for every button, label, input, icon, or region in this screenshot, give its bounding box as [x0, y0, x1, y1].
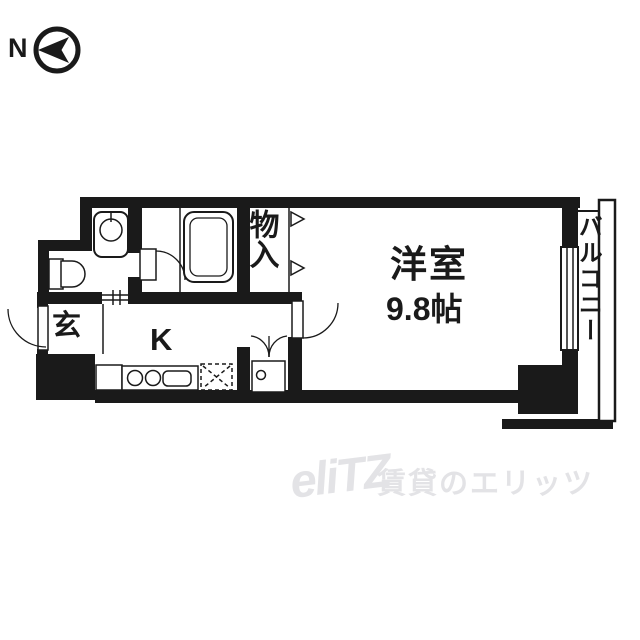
- bathtub-inner: [190, 218, 227, 276]
- label-closet: 物入: [245, 209, 277, 293]
- floorplan-drawing: [0, 0, 640, 640]
- label-balcony: バルコニー: [575, 214, 600, 399]
- compass-north-icon: [36, 29, 78, 71]
- label-western-room: 洋室: [390, 246, 468, 285]
- bathroom-door: [140, 249, 185, 280]
- bathroom: [180, 208, 233, 292]
- entrance-door: [8, 306, 48, 350]
- wall-bath-left-upper: [128, 197, 142, 253]
- floorplan-canvas: N 玄 K 物入 洋室 9.8帖 バルコニー eliTZ 賃貸のエリッツ: [0, 0, 640, 640]
- washbasin: [94, 212, 128, 257]
- bifold-door: [251, 336, 287, 357]
- washing-machine-pan: [252, 361, 285, 392]
- label-kitchen: K: [150, 324, 172, 357]
- pillar-bottom-right: [518, 365, 578, 414]
- wall-mid-right: [142, 292, 302, 304]
- wall-alcove-left: [237, 347, 250, 393]
- western-room-door: [292, 301, 338, 338]
- wall-bottom: [95, 390, 520, 403]
- label-room-size: 9.8帖: [386, 293, 463, 327]
- label-genkan: 玄: [52, 311, 81, 341]
- wall-top: [80, 197, 580, 208]
- watermark-brand-text: 賃貸のエリッツ: [377, 460, 594, 502]
- counter-end-box: [96, 365, 122, 390]
- wall-kitchen-room-lower: [288, 337, 302, 393]
- toilet: [49, 259, 85, 289]
- washing-machine-space: [201, 364, 232, 390]
- balcony-railing: [599, 200, 615, 421]
- wall-genkan-bottom-mass: [36, 354, 95, 400]
- closet-accordion-door: [289, 208, 304, 292]
- balcony-bottom-edge: [502, 419, 613, 429]
- wall-washroom-left: [80, 197, 92, 245]
- north-label: N: [8, 34, 29, 62]
- kitchen-counter: [96, 365, 198, 390]
